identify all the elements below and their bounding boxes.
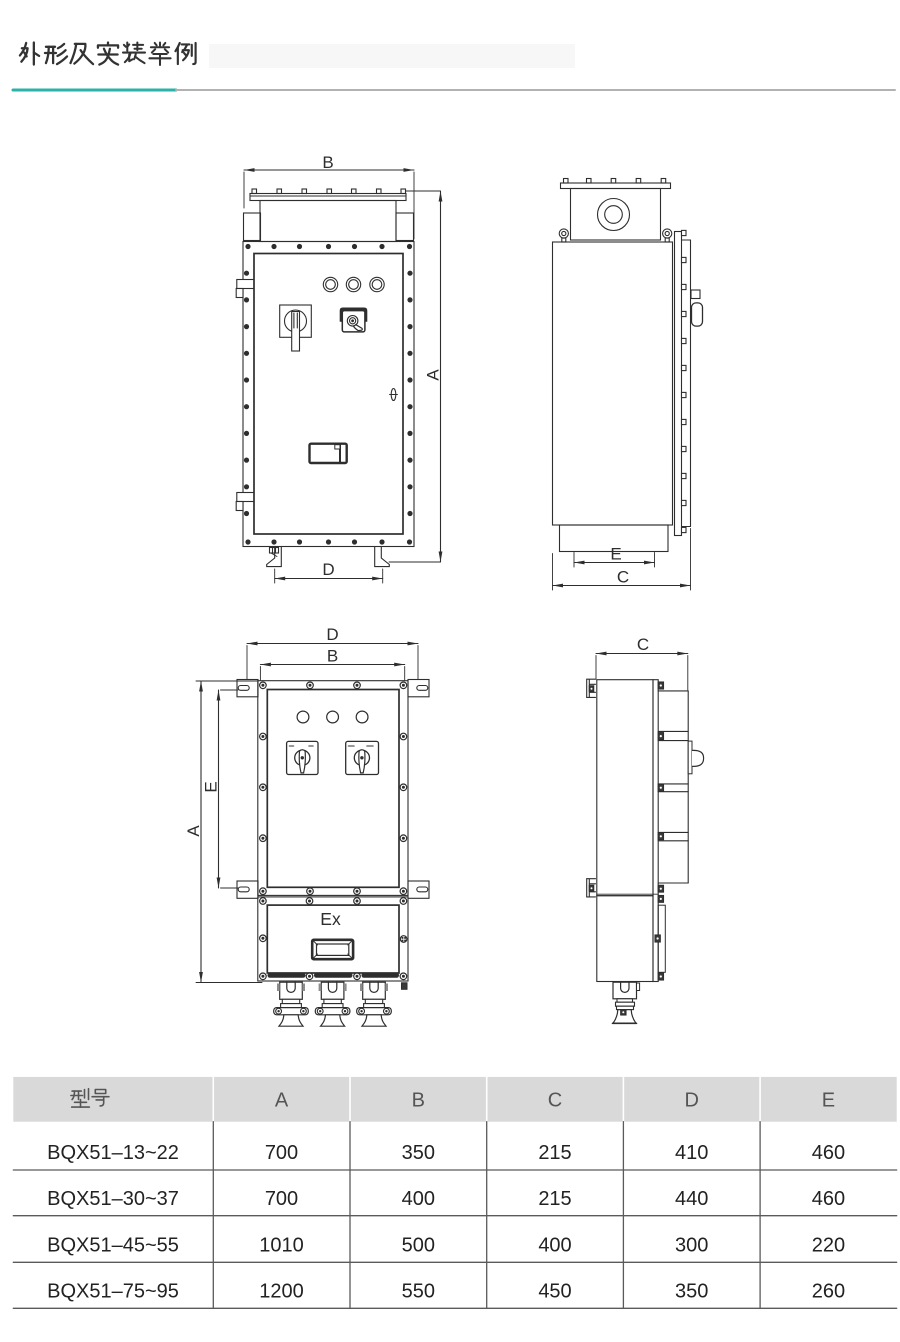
svg-text:B: B [322,153,333,172]
svg-text:220: 220 [812,1235,845,1257]
svg-text:BQX51–13~22: BQX51–13~22 [47,1142,179,1164]
svg-text:550: 550 [402,1281,435,1303]
svg-text:A: A [184,825,203,837]
svg-text:1010: 1010 [259,1235,304,1257]
svg-text:E: E [822,1090,835,1112]
svg-text:E: E [610,545,621,564]
svg-text:700: 700 [265,1188,298,1210]
svg-text:400: 400 [538,1235,571,1257]
svg-text:450: 450 [538,1281,571,1303]
svg-text:700: 700 [265,1142,298,1164]
svg-text:D: D [684,1090,698,1112]
svg-text:300: 300 [675,1235,708,1257]
svg-text:C: C [617,568,629,587]
svg-text:C: C [637,635,649,654]
svg-text:Ex: Ex [320,909,341,929]
svg-text:BQX51–45~55: BQX51–45~55 [47,1235,179,1257]
svg-text:D: D [322,560,334,579]
svg-text:460: 460 [812,1188,845,1210]
svg-text:500: 500 [402,1235,435,1257]
svg-text:1200: 1200 [259,1281,304,1303]
svg-text:215: 215 [538,1188,571,1210]
svg-text:B: B [327,647,338,666]
svg-text:E: E [202,781,221,792]
svg-text:D: D [326,625,338,644]
svg-text:B: B [412,1090,425,1112]
svg-text:460: 460 [812,1142,845,1164]
svg-text:440: 440 [675,1188,708,1210]
svg-text:BQX51–75~95: BQX51–75~95 [47,1281,179,1303]
svg-text:A: A [424,369,443,381]
svg-text:C: C [548,1090,562,1112]
svg-text:215: 215 [538,1142,571,1164]
svg-text:260: 260 [812,1281,845,1303]
svg-text:410: 410 [675,1142,708,1164]
svg-text:350: 350 [402,1142,435,1164]
svg-text:400: 400 [402,1188,435,1210]
svg-text:350: 350 [675,1281,708,1303]
svg-text:BQX51–30~37: BQX51–30~37 [47,1188,179,1210]
svg-text:A: A [275,1090,289,1112]
